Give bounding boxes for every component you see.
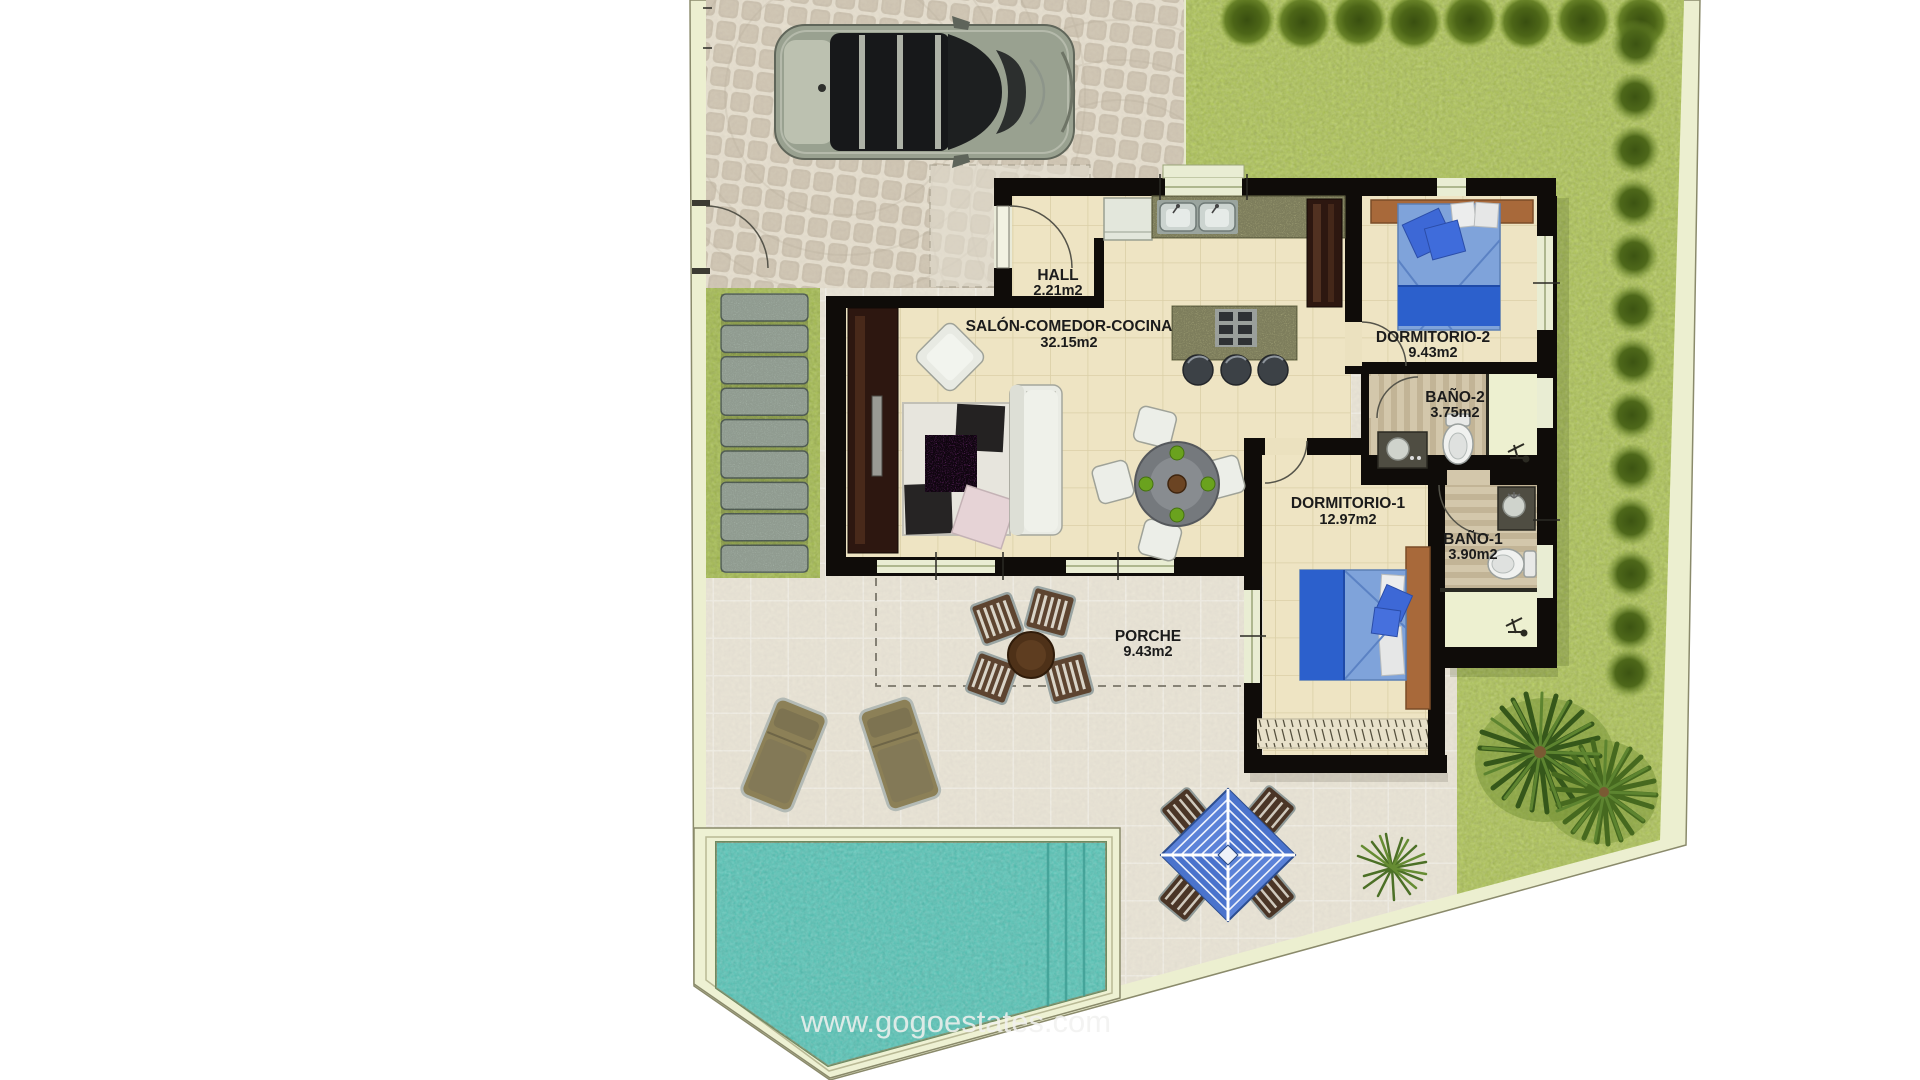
svg-text:32.15m2: 32.15m2 (1040, 335, 1097, 351)
svg-text:HALL: HALL (1037, 267, 1078, 284)
svg-text:3.75m2: 3.75m2 (1430, 405, 1479, 421)
svg-text:3.90m2: 3.90m2 (1448, 547, 1497, 563)
svg-text:BAÑO-2: BAÑO-2 (1425, 388, 1484, 406)
svg-text:12.97m2: 12.97m2 (1319, 512, 1376, 528)
svg-text:DORMITORIO-1: DORMITORIO-1 (1291, 495, 1406, 512)
svg-text:www.gogoestates.com: www.gogoestates.com (800, 1004, 1111, 1039)
svg-text:BAÑO-1: BAÑO-1 (1443, 530, 1503, 548)
svg-text:PORCHE: PORCHE (1115, 628, 1181, 645)
svg-text:9.43m2: 9.43m2 (1123, 644, 1172, 660)
svg-text:DORMITORIO-2: DORMITORIO-2 (1376, 329, 1490, 346)
svg-text:2.21m2: 2.21m2 (1033, 283, 1082, 299)
svg-text:SALÓN-COMEDOR-COCINA: SALÓN-COMEDOR-COCINA (966, 317, 1173, 335)
svg-text:9.43m2: 9.43m2 (1408, 345, 1457, 361)
